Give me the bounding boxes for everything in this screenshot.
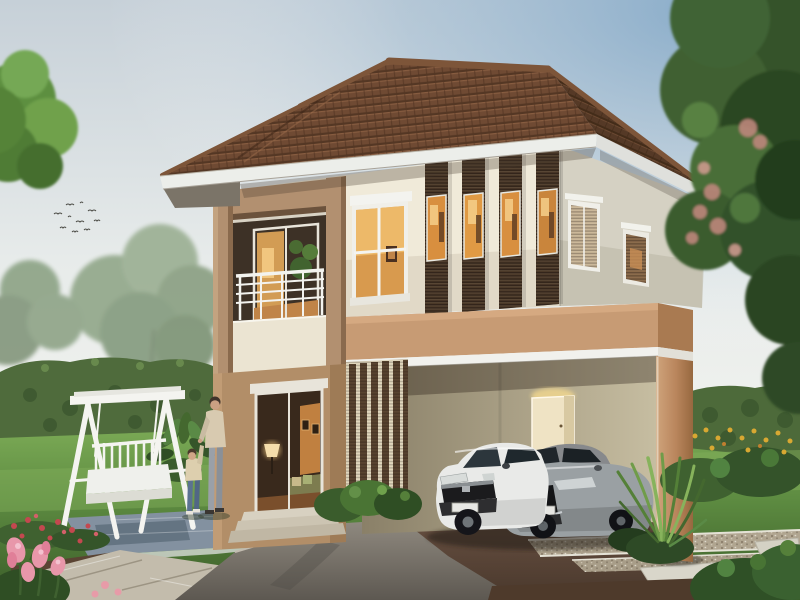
scene-canvas (0, 0, 800, 600)
side-window-left (565, 193, 603, 272)
balcony-parapet (233, 316, 326, 375)
house-rendering-photo (0, 0, 800, 600)
sliding-door (250, 378, 328, 518)
bedroom-window (350, 191, 412, 306)
louver-screen-lower (346, 359, 408, 501)
